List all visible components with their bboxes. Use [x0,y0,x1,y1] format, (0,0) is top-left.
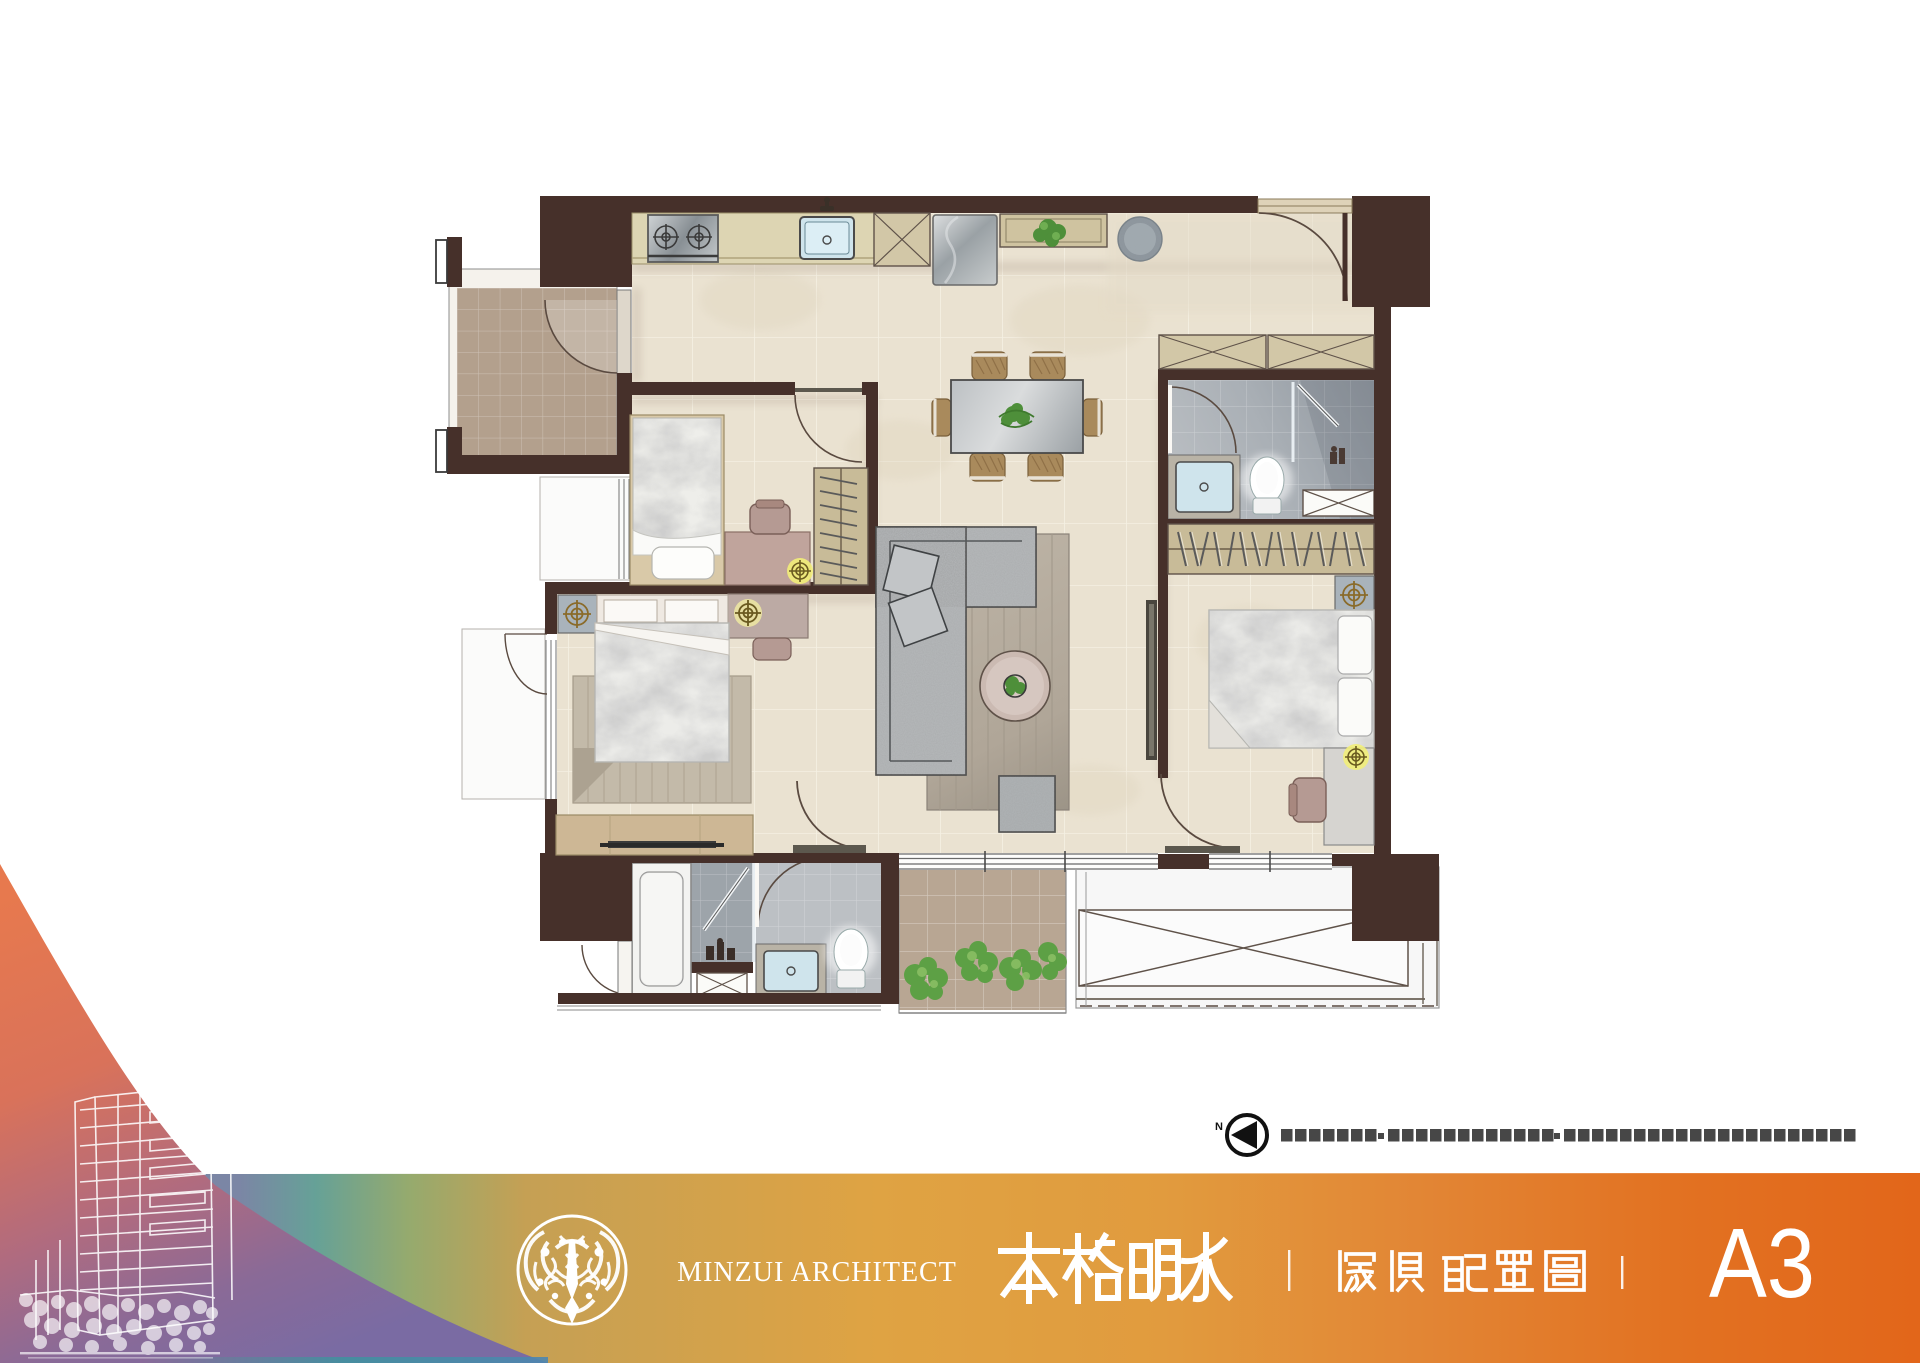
svg-text:A3: A3 [1709,1208,1815,1318]
svg-text:MINZUI ARCHITECT: MINZUI ARCHITECT [677,1257,957,1288]
svg-text:N: N [1215,1121,1223,1133]
